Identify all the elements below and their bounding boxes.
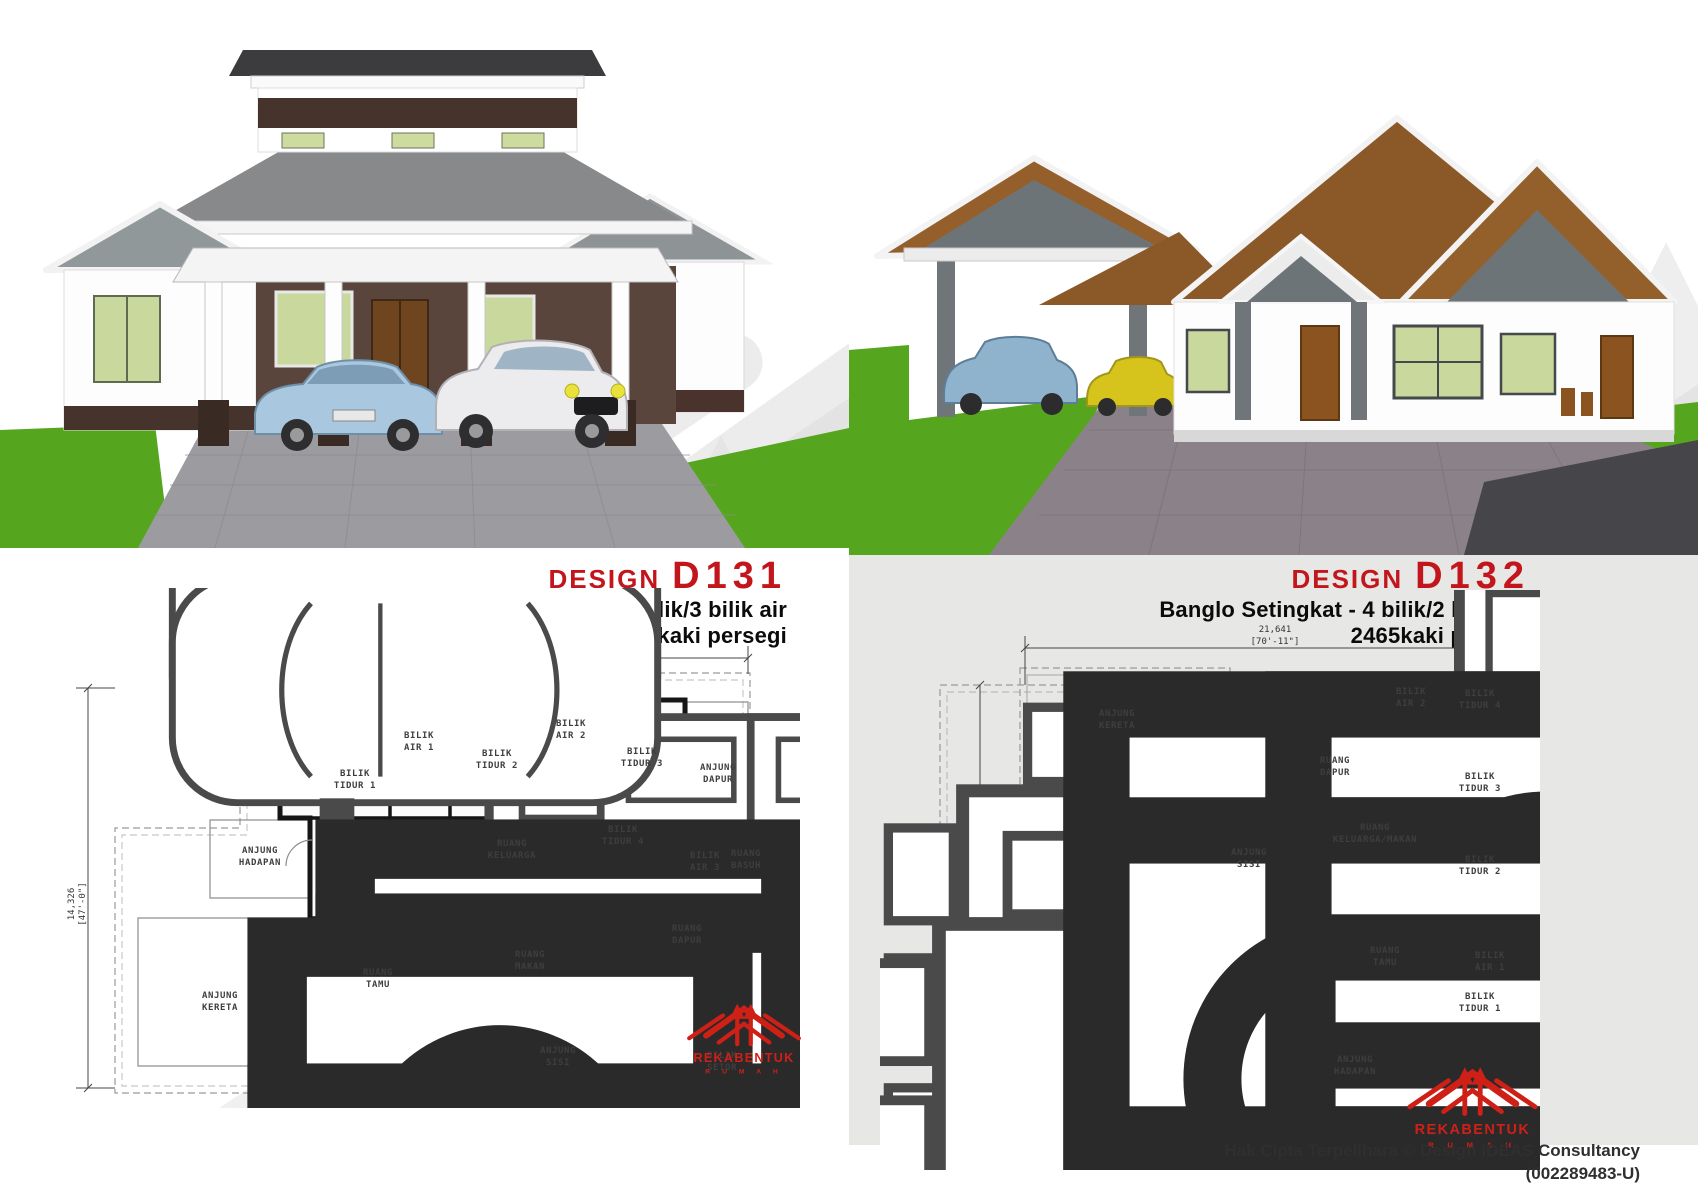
porch-roof bbox=[173, 248, 678, 282]
copyright-line2: (002289483-U) bbox=[1224, 1163, 1640, 1186]
driveway bbox=[138, 424, 745, 548]
porch-floor bbox=[1174, 430, 1674, 442]
panel-d131: REKABENTUK R U M A H bbox=[0, 0, 849, 1200]
copyright-notice: Hak Cipta Terpelihara © Design IDEAS Con… bbox=[1224, 1140, 1640, 1186]
window-small bbox=[1501, 334, 1555, 394]
dim-left-mm: 14,326 bbox=[67, 888, 77, 921]
grass-left bbox=[849, 345, 909, 555]
flyer-page: REKABENTUK R U M A H bbox=[0, 0, 1698, 1200]
house-render-d131: REKABENTUK R U M A H bbox=[0, 0, 849, 548]
svg-text:ANJUNGHADAPAN: ANJUNGHADAPAN bbox=[239, 846, 281, 868]
clerestory bbox=[229, 50, 606, 152]
panel-d132: DESIGND132 Banglo Setingkat - 4 bilik/2 … bbox=[849, 0, 1698, 1200]
dim-top-ft: [70'-11"] bbox=[1251, 637, 1300, 647]
house-render-d132 bbox=[849, 0, 1698, 555]
side-door bbox=[1601, 336, 1633, 418]
dim-left-ft: [47'-0"] bbox=[78, 882, 88, 925]
dim-top-mm: 21,641 bbox=[1259, 625, 1292, 635]
copyright-line1: Hak Cipta Terpelihara © Design IDEAS Con… bbox=[1224, 1140, 1640, 1163]
grass-left bbox=[0, 424, 170, 548]
svg-text:ANJUNGKERETA: ANJUNGKERETA bbox=[202, 991, 238, 1013]
rekabentuk-logo-plan-d131 bbox=[685, 980, 803, 1088]
front-door bbox=[1301, 326, 1339, 420]
